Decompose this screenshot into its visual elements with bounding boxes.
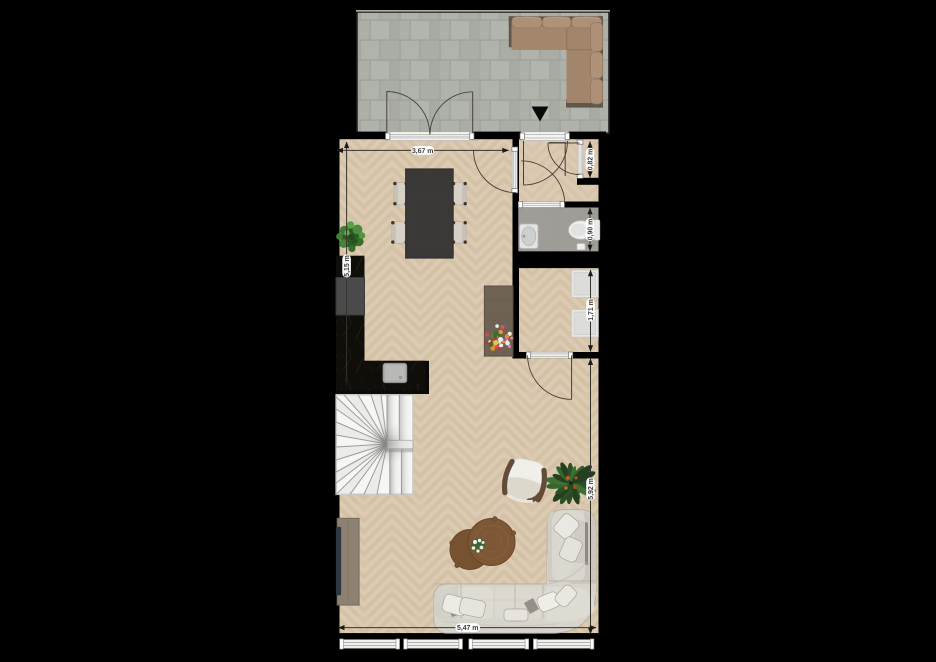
svg-text:0,90 m: 0,90 m — [588, 219, 595, 240]
svg-text:5,15 m: 5,15 m — [344, 255, 351, 276]
svg-text:0,82 m: 0,82 m — [588, 149, 595, 170]
svg-text:1,71 m: 1,71 m — [588, 299, 595, 320]
svg-text:5,47 m: 5,47 m — [457, 625, 478, 632]
svg-text:5,92 m: 5,92 m — [588, 478, 595, 499]
svg-text:3,67 m: 3,67 m — [412, 148, 433, 155]
